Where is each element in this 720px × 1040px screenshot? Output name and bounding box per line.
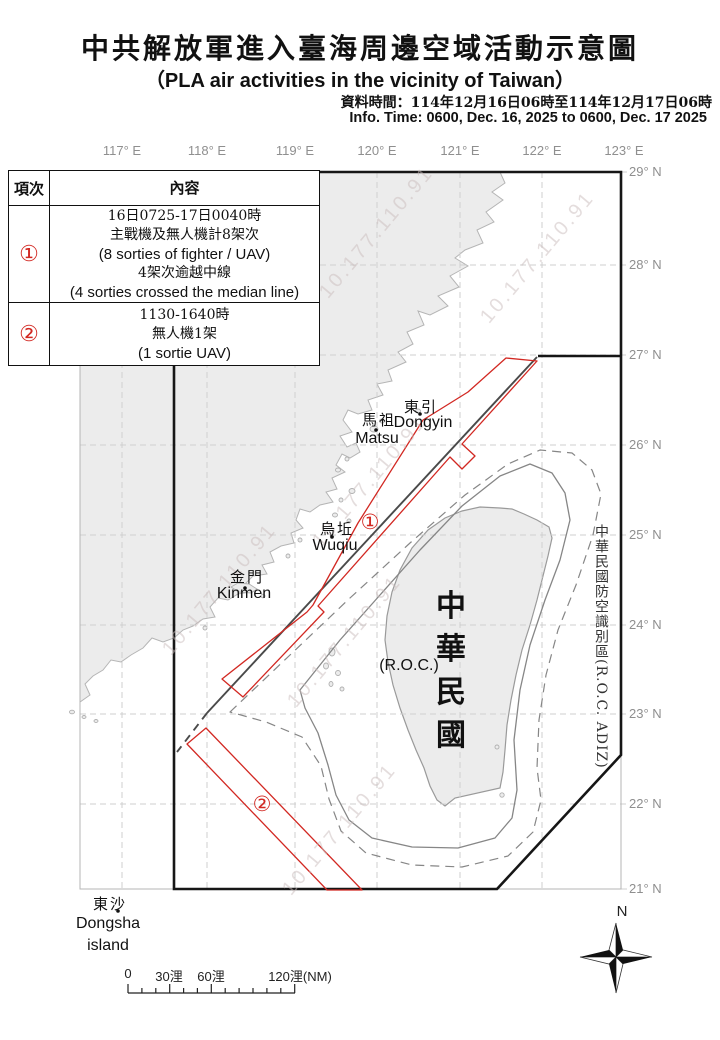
place-label-wuqiu-en: Wuqiu [308,537,362,555]
lon-label-121e: 121° E [430,143,490,158]
lat-label-27n: 27° N [629,347,679,362]
legend-row-1-content: 16日0725-17日0040時 主戰機及無人機計8架次 (8 sorties … [50,206,319,302]
activity-legend-table: 項次 內容 ① 16日0725-17日0040時 主戰機及無人機計8架次 (8 … [8,170,320,366]
page-title: 中共解放軍進入臺海周邊空域活動示意圖 [0,27,720,67]
corridor-2-label: ② [249,792,275,818]
legend-col-content: 內容 [50,171,319,205]
page-subtitle: （PLA air activities in the vicinity of T… [0,64,720,93]
compass-north-label: N [610,903,634,920]
lon-label-118e: 118° E [177,143,237,158]
legend-row-2: ② 1130-1640時 無人機1架 (1 sortie UAV) [9,302,319,365]
legend-header-row: 項次 內容 [9,171,319,205]
lon-label-117e: 117° E [92,143,152,158]
lat-label-26n: 26° N [629,437,679,452]
scale-bar [128,984,295,993]
lon-label-122e: 122° E [512,143,572,158]
place-label-matsu-zh: 馬祖 [356,409,402,430]
lat-label-29n: 29° N [629,164,679,179]
scale-label-30: 30浬 [147,966,191,985]
legend-row-1-line-1: 16日0725-17日0040時 [108,207,262,226]
place-label-matsu-en: Matsu [351,430,403,448]
place-label-kinmen-zh: 金門 [224,566,270,587]
place-label-dongsha-en: Dongsha [72,915,144,933]
taiwan-label-roc: (R.O.C.) [374,657,444,675]
place-label-wuqiu-zh: 烏坵 [314,518,360,539]
pla-air-activity-map-page: 10.177.110.91 10.177.110.91 10.177.110.9… [0,0,720,1040]
place-label-dongsha-island: island [72,937,144,955]
legend-row-2-content: 1130-1640時 無人機1架 (1 sortie UAV) [50,303,319,365]
lat-label-24n: 24° N [629,617,679,632]
place-label-dongsha-zh: 東沙 [84,893,136,914]
legend-row-1-num: ① [9,206,50,302]
legend-row-2-line-3: (1 sortie UAV) [138,344,231,363]
scale-label-120: 120浬(NM) [252,966,348,985]
lon-label-123e: 123° E [594,143,654,158]
info-time-zh: 資料時間：114年12月16日06時至114年12月17日06時 [341,92,712,112]
adiz-label: 中華民國防空識別區(R.O.C. ADIZ) [591,524,611,776]
scale-label-0: 0 [120,966,136,981]
legend-row-1-line-2: 主戰機及無人機計8架次 [110,226,259,245]
legend-row-1-line-3: (8 sorties of fighter / UAV) [99,245,270,264]
legend-col-item: 項次 [9,171,50,205]
legend-row-2-line-2: 無人機1架 [152,325,217,344]
info-time-en: Info. Time: 0600, Dec. 16, 2025 to 0600,… [349,110,707,126]
lat-label-28n: 28° N [629,257,679,272]
scale-label-60: 60浬 [189,966,233,985]
corridor-1-label: ① [357,510,383,536]
lat-label-22n: 22° N [629,796,679,811]
lon-label-120e: 120° E [347,143,407,158]
legend-row-2-line-1: 1130-1640時 [140,306,230,325]
place-label-kinmen-en: Kinmen [214,585,274,603]
compass-rose-icon [580,923,652,993]
lat-label-23n: 23° N [629,706,679,721]
lat-label-25n: 25° N [629,527,679,542]
legend-row-2-num: ② [9,303,50,365]
lat-label-21n: 21° N [629,881,679,896]
lon-label-119e: 119° E [265,143,325,158]
legend-row-1: ① 16日0725-17日0040時 主戰機及無人機計8架次 (8 sortie… [9,205,319,302]
legend-row-1-line-5: (4 sorties crossed the median line) [70,283,299,302]
legend-row-1-line-4: 4架次逾越中線 [138,264,231,283]
